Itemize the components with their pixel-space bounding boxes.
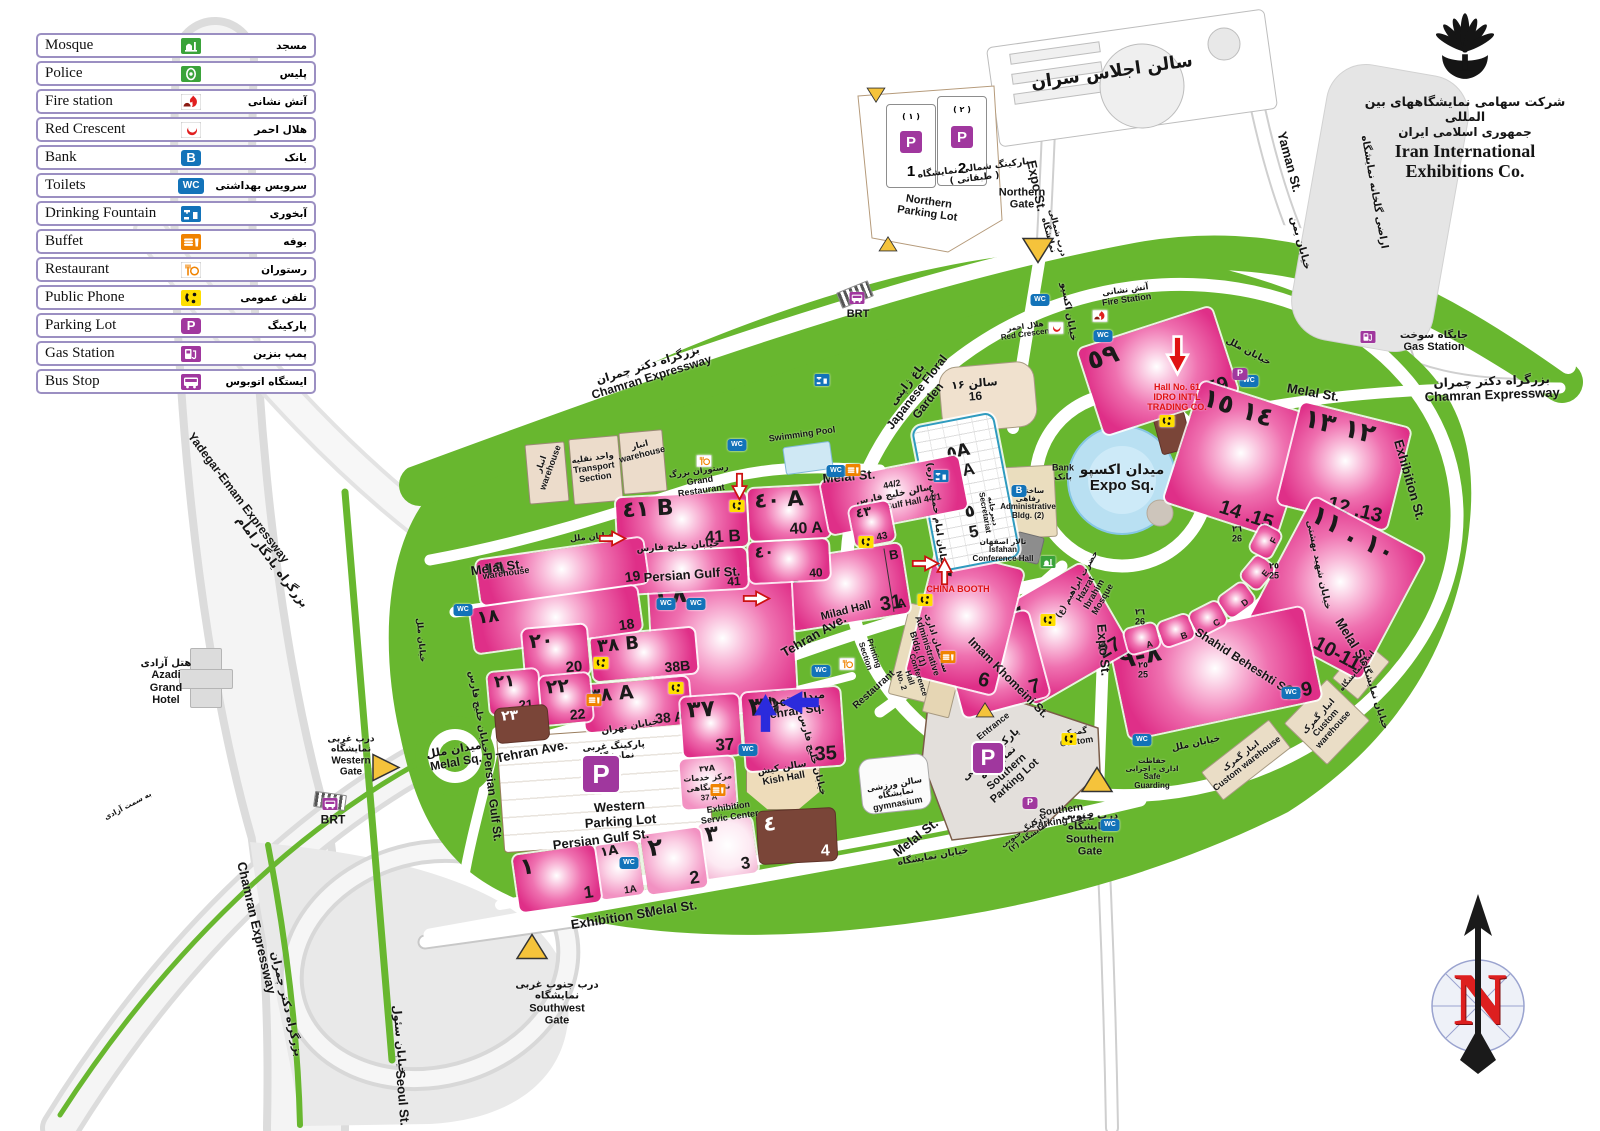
hall-26-label-1: ٢٦26	[1135, 607, 1145, 626]
gate-southwest-label: درب جنوب غربینمایشگاهSouthwestGate	[515, 979, 598, 1026]
label-line: Expo St.	[1093, 623, 1112, 676]
label-line: به سمت آزادی	[103, 790, 153, 822]
legend-label-fa: تلفن عمومی	[206, 292, 307, 304]
hall-sub-letter: B	[888, 546, 900, 562]
label-line: خیابان سئول	[390, 1005, 408, 1076]
buffet-marker	[846, 463, 861, 481]
legend-label-fa: مسجد	[206, 40, 307, 52]
parking-icon: P	[1023, 797, 1038, 809]
northern-parking: NorthernParking Lot	[896, 192, 959, 225]
label-line: Yaman St.	[1274, 130, 1304, 194]
legend-icon-cell: B	[176, 150, 206, 166]
hall-number-fa: ٢٢	[545, 675, 570, 699]
wc-marker: WC	[657, 592, 676, 610]
hall-number: 38B	[664, 657, 691, 675]
gate-parking-north-1-marker	[866, 86, 886, 109]
street-chamran-top: بزرگراه دکتر چمرانChamran Expressway	[587, 341, 714, 402]
wc-icon: WC	[1282, 687, 1301, 699]
legend-icon-cell	[176, 346, 206, 362]
legend-item-gas: Gas Stationپمپ بنزین	[36, 341, 316, 366]
label-line: 25	[1138, 670, 1148, 680]
buffet-marker	[711, 783, 726, 801]
label-line: BRT	[847, 308, 870, 320]
legend-label-en: Toilets	[45, 177, 176, 194]
hall-number: F	[1268, 536, 1279, 546]
hall-number: 22	[569, 705, 586, 722]
parking-icon: P	[583, 756, 619, 792]
legend-label-en: Public Phone	[45, 289, 176, 306]
legend-label-en: Gas Station	[45, 345, 176, 362]
parking-icon: P	[181, 318, 201, 334]
phone-icon	[1160, 415, 1175, 427]
phone-icon	[1041, 614, 1056, 626]
legend-label-en: Bus Stop	[45, 373, 176, 390]
label-line: ٢٦	[1232, 524, 1242, 533]
legend-icon-cell	[176, 94, 206, 110]
hall-2: ٢2	[640, 827, 708, 895]
legend-icon-cell: WC	[176, 178, 206, 194]
legend-item-fire: Fire stationآتش نشانی	[36, 89, 316, 114]
fountain-marker	[815, 373, 830, 391]
legend-icon-cell	[176, 122, 206, 138]
phone-icon	[918, 594, 933, 606]
label-line: Conference Hall	[973, 555, 1034, 564]
hall-number-fa: ٤٠	[754, 542, 774, 562]
map-legend: MosqueمسجدPoliceپلیسFire stationآتش نشان…	[36, 33, 316, 397]
hall-number: 1	[582, 882, 594, 903]
hall-12-13: ١٢ ١٣12 .13	[1277, 402, 1411, 530]
parking-marker: P	[1233, 363, 1248, 381]
label-line: سالن اجلاس سران	[1030, 52, 1194, 94]
wc-icon: WC	[1031, 294, 1050, 306]
label-line: Southern	[1062, 833, 1118, 845]
wc-icon: WC	[1094, 330, 1113, 342]
wc-marker: WC	[1133, 728, 1152, 746]
label-line: Northern	[999, 187, 1045, 199]
hall-number-fa: ٤٠ A	[754, 486, 804, 513]
restaurant-icon	[181, 262, 201, 278]
street-yadegar-fa: بزرگراه یادگار امام	[233, 514, 310, 611]
wc-icon: WC	[657, 598, 676, 610]
wc-marker: WC	[728, 433, 747, 451]
label-line: Gas Station	[1400, 342, 1468, 354]
buffet-icon	[181, 234, 201, 250]
label-line: Gate	[999, 199, 1045, 211]
label-line: Gate	[515, 1014, 598, 1026]
wc-icon: WC	[687, 598, 706, 610]
brt-label-1: BRT	[847, 308, 870, 320]
buffet-icon	[711, 784, 726, 796]
parking-tower-fa: ( ۲ )	[953, 105, 971, 114]
label-line: خیابان ملل	[414, 617, 427, 662]
hall-25-label-2: ٢٥25	[1269, 561, 1279, 580]
phone-icon	[594, 657, 609, 669]
company-name-en: Iran International Exhibitions Co.	[1360, 142, 1570, 182]
legend-item-mosque: Mosqueمسجد	[36, 33, 316, 58]
wc-marker: WC	[739, 738, 758, 756]
label-line: TRADING CO.	[1147, 402, 1207, 412]
label-line: Guarding	[1125, 782, 1178, 791]
hall-number: 37	[715, 734, 735, 755]
legend-item-bus: Bus Stopایستگاه اتوبوس	[36, 369, 316, 394]
fire-icon	[1093, 310, 1108, 322]
legend-label-en: Police	[45, 65, 176, 82]
label-line: درب جنوب غربی	[515, 979, 598, 990]
wc-icon: WC	[620, 857, 639, 869]
label-line: 26	[1232, 534, 1242, 544]
legend-label-fa: سرویس بهداشتی	[206, 180, 307, 192]
redcrescent-marker	[1049, 321, 1064, 339]
street-yadegar: Yadegar-Emam Expressway	[185, 430, 292, 565]
legend-label-fa: بانک	[206, 152, 307, 164]
idro-arrow-icon	[1158, 334, 1192, 378]
parking-marker: P	[1023, 792, 1038, 810]
label-line: ٢٦	[1135, 607, 1145, 616]
phone-icon	[859, 536, 874, 548]
hall-23: ٢٣	[495, 705, 550, 743]
label-line: Western	[327, 755, 374, 766]
wc-icon: WC	[178, 178, 204, 194]
parking-icon: P	[973, 743, 1003, 773]
wc-icon: WC	[1133, 734, 1152, 746]
hall-number: A	[1145, 639, 1154, 650]
bus-icon	[323, 798, 338, 810]
street-chamran-left: Chamran Expressway	[234, 861, 279, 996]
gas-marker	[1361, 330, 1376, 348]
hall-number: 40 A	[789, 519, 823, 539]
red-arrow-icon	[742, 589, 772, 614]
red-crescent-label: هلال احمرRed Crescent	[999, 319, 1052, 343]
phone-marker	[1062, 732, 1077, 750]
label-line: 26	[1135, 617, 1145, 627]
buffet-marker	[941, 650, 956, 668]
buffet-icon	[587, 694, 602, 706]
street-chamran-right: بزرگراه دکتر چمرانChamran Expressway	[1424, 373, 1560, 406]
wc-marker: WC	[827, 459, 846, 477]
admin-bldg-2-label: ساختمانرفاهیAdministrativeBldg. (2)	[1000, 487, 1056, 521]
company-name-fa-line2: جمهوری اسلامی ایران	[1360, 125, 1570, 139]
label-line: بانک	[1052, 472, 1074, 481]
legend-label-en: Mosque	[45, 37, 176, 54]
parking-icon: P	[951, 126, 973, 148]
label-line: جایگاه سوخت	[1400, 330, 1468, 341]
legend-rows: MosqueمسجدPoliceپلیسFire stationآتش نشان…	[36, 33, 316, 394]
phone-marker	[859, 535, 874, 553]
legend-item-police: Policeپلیس	[36, 61, 316, 86]
restaurant-marker	[840, 657, 855, 675]
hall-3: ٣3	[697, 817, 758, 880]
gate-southern-marker	[1080, 765, 1114, 801]
label-line: Melal St.	[1286, 381, 1340, 404]
hall-37: ٣٧37	[680, 694, 742, 758]
hall-40A: ٤٠ A40 A	[748, 485, 831, 541]
legend-icon-cell	[176, 290, 206, 306]
buffet-icon	[846, 464, 861, 476]
idro-label: Hall No. 61IDRO INT'LTRADING CO.	[1147, 382, 1207, 412]
buffet-marker	[587, 693, 602, 711]
label-line: ٢٥	[1269, 561, 1279, 570]
legend-item-phone: Public Phoneتلفن عمومی	[36, 285, 316, 310]
red-arrow-icon	[935, 556, 960, 586]
blue-arrow-icon	[780, 685, 820, 716]
fountain-icon	[181, 206, 201, 222]
label-line: Grand	[141, 682, 192, 694]
street-melal-ne: Melal St.	[1286, 381, 1340, 404]
fire-marker	[1093, 309, 1108, 327]
legend-item-wc: ToiletsWCسرویس بهداشتی	[36, 173, 316, 198]
legend-label-en: Restaurant	[45, 261, 176, 278]
label-line: Southwest	[515, 1002, 598, 1014]
fountain-icon	[934, 470, 949, 482]
legend-icon-cell	[176, 262, 206, 278]
bus-icon	[850, 292, 865, 304]
hall-number-fa: ٤١ B	[622, 495, 675, 523]
legend-icon-cell	[176, 38, 206, 54]
wc-icon: WC	[827, 465, 846, 477]
compass: N	[1402, 888, 1558, 1088]
wc-icon: WC	[739, 744, 758, 756]
label-line: میدان اکسپو	[1080, 463, 1165, 478]
hall-number: B	[1179, 630, 1189, 642]
phone-icon	[181, 290, 201, 306]
legend-label-fa: رستوران	[206, 264, 307, 276]
label-line: Gate	[1062, 845, 1118, 857]
legend-icon-cell	[176, 66, 206, 82]
western-parking: WesternParking Lot	[583, 797, 656, 831]
restaurant-icon	[697, 455, 712, 467]
hall-number-fa: ٤	[763, 811, 777, 836]
hall-number-fa: ١٨	[476, 605, 501, 629]
label-line: Hall No. 61	[1147, 382, 1207, 392]
hall-number-fa: ٣٨ B	[596, 632, 640, 657]
hall-number: D	[1239, 597, 1250, 609]
hall-number: 6	[976, 668, 992, 693]
label-line: Chamran Expressway	[1424, 386, 1560, 405]
parking-tower-fa: ( ۱ )	[902, 112, 920, 121]
blue-arrow-icon	[753, 693, 784, 733]
hall-40: ٤٠40	[748, 539, 830, 583]
street-melal-fa-4: خیابان ملل	[414, 617, 427, 662]
map-page: ٥٩59١٤ ١٥14 .15١٢ ١٣12 .13١٠ . ١١10-11٨-…	[0, 0, 1600, 1131]
legend-label-fa: آتش نشانی	[206, 96, 307, 108]
police-icon	[181, 66, 201, 82]
mosque-icon	[181, 38, 201, 54]
street-seoul-fa: خیابان سئول	[390, 1005, 408, 1076]
hall-number: 3	[740, 853, 752, 874]
legend-label-en: Buffet	[45, 233, 176, 250]
fountain-icon	[815, 374, 830, 386]
bank-icon: B	[1012, 485, 1027, 497]
legend-item-fountain: Drinking Fountainآبخوری	[36, 201, 316, 226]
legend-label-fa: پلیس	[206, 68, 307, 80]
company-name-fa-line1: شرکت سهامی نمایشگاههای بین المللی	[1360, 94, 1570, 124]
compass-arrow-icon	[1402, 888, 1558, 1088]
hall-number: 4	[820, 842, 830, 860]
legend-label-fa: پارکینگ	[206, 320, 307, 332]
legend-icon-cell	[176, 206, 206, 222]
bank-label: Bankبانک	[1052, 462, 1074, 481]
hall-25-label-1: ٢٥25	[1138, 660, 1148, 679]
legend-icon-cell: P	[176, 318, 206, 334]
square-melal: میدان مللMelal Sq.	[425, 739, 485, 774]
restaurant-icon	[840, 658, 855, 670]
to-azadi-label: به سمت آزادی	[103, 790, 153, 822]
bus-marker	[323, 797, 338, 815]
hall-4: ٤4	[757, 808, 838, 864]
label-line: Chamran Expressway	[234, 861, 279, 996]
gate-entrance-marker	[975, 702, 995, 725]
company-logo-icon	[1360, 10, 1570, 92]
azadi-hotel-label: هتل آزادیAzadiGrandHotel	[141, 658, 192, 706]
label-line: 25	[1269, 571, 1279, 581]
label-line: بزرگراه یادگار امام	[233, 514, 310, 611]
safe-guarding-label: حفاظتاداری - اجراییSafeGuarding	[1125, 757, 1178, 791]
hall-number: 1A	[623, 884, 637, 897]
label-line: بزرگراه دکتر چمران	[268, 950, 304, 1057]
gate-southwest-marker	[515, 932, 549, 968]
label-line: خیابان ملل	[1224, 336, 1272, 368]
fire-icon	[181, 94, 201, 110]
bus-icon	[181, 374, 201, 390]
hall-16-label: سالن ۱۶16	[951, 376, 999, 406]
restaurant-marker	[697, 454, 712, 472]
wc-icon: WC	[812, 665, 831, 677]
parking-icon: P	[1233, 368, 1248, 380]
phone-marker	[594, 656, 609, 674]
legend-icon-cell	[176, 374, 206, 390]
redcrescent-icon	[1049, 322, 1064, 334]
legend-label-en: Red Crescent	[45, 121, 176, 138]
street-chamran-left-fa: بزرگراه دکتر چمران	[268, 950, 304, 1057]
phone-icon	[669, 682, 684, 694]
hall-number-fa: ٥٩	[1083, 338, 1122, 376]
street-seoul: Seoul St.	[392, 1070, 411, 1127]
hall-number-fa: ٤٣	[854, 504, 872, 522]
hall-number: 18	[618, 615, 636, 633]
legend-item-bank: BankBبانک	[36, 145, 316, 170]
hall-number-fa: ٢١	[493, 671, 515, 693]
label-line: نمایشگاه	[515, 991, 598, 1002]
legend-label-fa: آبخوری	[206, 208, 307, 220]
label-line: هتل آزادی	[141, 658, 192, 669]
gate-western-marker	[369, 752, 403, 788]
hall-number: 43	[876, 530, 889, 543]
parking-tower-number: 1	[907, 163, 915, 180]
hall-number: 2	[688, 867, 701, 889]
parking-icon: P	[900, 131, 922, 153]
wc-marker: WC	[812, 659, 831, 677]
phone-marker	[1041, 613, 1056, 631]
legend-label-fa: پمپ بنزین	[206, 348, 307, 360]
hall-number: 19	[624, 567, 642, 585]
legend-item-restaurant: Restaurantرستوران	[36, 257, 316, 282]
hall-number-fa: ٢٠	[528, 627, 554, 653]
wc-marker: WC	[1282, 681, 1301, 699]
street-melal-fa-2: خیابان ملل	[1171, 734, 1221, 754]
legend-item-buffet: Buffetبوفه	[36, 229, 316, 254]
mosque-marker	[1041, 555, 1056, 573]
hall-number-fa: ٢٣	[501, 707, 519, 724]
wc-marker: WC	[687, 592, 706, 610]
mosque-icon	[1041, 556, 1056, 568]
label-line: Seoul St.	[392, 1070, 411, 1127]
gate-northern-marker	[1021, 234, 1055, 270]
wc-icon: WC	[1101, 819, 1120, 831]
square-expo: میدان اکسپوExpo Sq.	[1080, 463, 1165, 495]
hall-1A: ١A1A	[593, 840, 644, 900]
wc-marker: WC	[1031, 288, 1050, 306]
transport-section-label: واحد نقلیهTransportSection	[571, 450, 617, 485]
bank-marker: B	[1012, 480, 1027, 498]
hall-number: 40	[809, 565, 823, 580]
hall-number-fa: ١	[518, 853, 536, 881]
legend-item-parking: Parking LotPپارکینگ	[36, 313, 316, 338]
hall-sub-letter: A	[896, 595, 908, 611]
fountain-marker	[934, 469, 949, 487]
street-melal-fa-1: خیابان ملل	[1224, 336, 1272, 368]
gas-icon	[181, 346, 201, 362]
company-name-en-line2: Exhibitions Co.	[1360, 162, 1570, 182]
company-header: شرکت سهامی نمایشگاههای بین المللی جمهوری…	[1360, 10, 1570, 182]
label-line: Hotel	[141, 694, 192, 706]
legend-label-en: Drinking Fountain	[45, 205, 176, 222]
gas-icon	[1361, 331, 1376, 343]
wc-icon: WC	[728, 439, 747, 451]
wc-marker: WC	[620, 851, 639, 869]
wc-marker: WC	[454, 598, 473, 616]
label-line: Exhibition St.	[570, 905, 654, 932]
hall-number-fa: ١٢ ١٣	[1301, 403, 1379, 450]
bus-marker	[850, 291, 865, 309]
legend-icon-cell	[176, 234, 206, 250]
legend-label-en: Parking Lot	[45, 317, 176, 334]
red-arrow-icon	[598, 529, 628, 554]
wc-icon: WC	[454, 604, 473, 616]
fire-station-label: آتش نشانیFire Station	[1100, 282, 1152, 308]
street-yaman: Yaman St.	[1274, 130, 1304, 194]
phone-marker	[918, 593, 933, 611]
legend-label-en: Fire station	[45, 93, 176, 110]
label-line: Azadi	[141, 669, 192, 681]
gate-western-label: درب غربینمایشگاهWesternGate	[327, 735, 374, 778]
phone-icon	[1062, 733, 1077, 745]
hall-number-fa: ٣٧	[686, 696, 716, 724]
isfahan-hall-label: تالار اصفهانIsfahanConference Hall	[973, 538, 1034, 564]
legend-item-redcrescent: Red Crescentهلال احمر	[36, 117, 316, 142]
legend-label-fa: هلال احمر	[206, 124, 307, 136]
legend-label-en: Bank	[45, 149, 176, 166]
bank-icon: B	[181, 150, 201, 166]
phone-marker	[669, 681, 684, 699]
label-line: ٢٥	[1138, 660, 1148, 669]
red-arrow-icon	[725, 472, 750, 502]
summit-hall-fa: سالن اجلاس سران	[1030, 52, 1194, 94]
southern-parking2-fa: پارکینگ جنوبینمایشگاه (۲)	[999, 812, 1052, 856]
street-expo-south: Expo St.	[1093, 623, 1112, 676]
label-line: IDRO INT'L	[1147, 392, 1207, 402]
label-line: Yadegar-Emam Expressway	[185, 430, 292, 565]
wc-marker: WC	[1101, 813, 1120, 831]
label-line: Bldg. (2)	[1000, 512, 1056, 521]
redcrescent-icon	[181, 122, 201, 138]
gate-northern-label: NorthernGate	[999, 187, 1045, 212]
phone-marker	[1160, 414, 1175, 432]
label-line: نمایشگاه	[327, 745, 374, 755]
gas-station-label: جایگاه سوختGas Station	[1400, 330, 1468, 354]
gate-parking-north-2-marker	[878, 236, 898, 259]
hall-26-label-2: ٢٦26	[1232, 524, 1242, 543]
hall-1: ١1	[512, 845, 601, 913]
